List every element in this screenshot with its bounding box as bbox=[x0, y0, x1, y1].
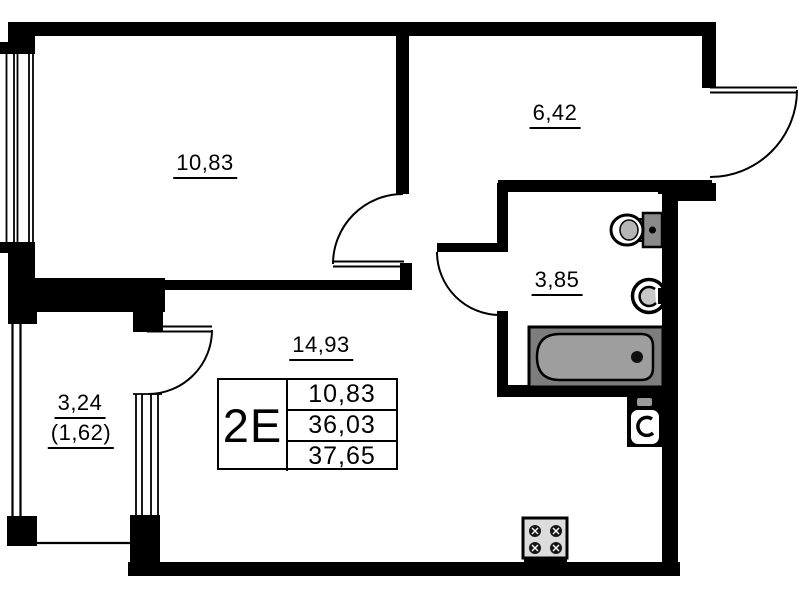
sink-unit-icon bbox=[627, 389, 663, 447]
room-area-label-living: 14,93 bbox=[289, 333, 353, 357]
door-swing-arc bbox=[333, 194, 403, 264]
area-row-living: 10,83 bbox=[288, 380, 396, 409]
wall-left-window-bottom-cap bbox=[8, 242, 35, 282]
door-balcony bbox=[147, 327, 212, 395]
door-swing-arc bbox=[710, 90, 797, 177]
room-area-label-hallway: 6,42 bbox=[530, 101, 581, 125]
door-swing-arc bbox=[437, 252, 500, 315]
unit-info-table: 2E 10,83 36,03 37,65 bbox=[217, 378, 398, 470]
room-area-label-balcony: 3,24 bbox=[55, 391, 106, 415]
wall-balcony-junction-block bbox=[130, 515, 160, 576]
washbasin-icon bbox=[633, 280, 666, 313]
door-bathroom bbox=[437, 243, 508, 315]
area-row-total-with-balcony: 37,65 bbox=[288, 440, 396, 471]
floorplan-drawing bbox=[0, 0, 799, 600]
unit-type-cell: 2E bbox=[219, 380, 288, 471]
bathtub-drain bbox=[631, 351, 643, 363]
room-area-label-balcony-coeff: (1,62) bbox=[48, 421, 114, 445]
toilet-icon bbox=[611, 213, 662, 247]
wall-bottom bbox=[128, 562, 680, 576]
wall-balcony-door-header bbox=[133, 288, 163, 332]
door-room-to-hall bbox=[333, 194, 404, 267]
window-balcony bbox=[133, 394, 162, 516]
floorplan-canvas: 10,83 6,42 3,85 14,93 3,24 (1,62) 2E 10,… bbox=[0, 0, 799, 600]
wall-balcony-top-corner bbox=[8, 278, 37, 324]
window-sill-top bbox=[0, 42, 35, 54]
wall-top bbox=[8, 22, 716, 36]
room-area-label-top-room: 10,83 bbox=[173, 151, 237, 175]
wall-bath-left-upper bbox=[497, 183, 508, 252]
wall-room-hall-divider bbox=[396, 22, 409, 194]
window-room-left bbox=[7, 53, 34, 243]
wall-entrance-jamb-top bbox=[702, 22, 716, 88]
door-entrance bbox=[710, 88, 797, 178]
stove-icon bbox=[523, 518, 567, 558]
wall-bath-left-lower bbox=[497, 311, 508, 397]
room-area-label-bathroom: 3,85 bbox=[532, 268, 583, 292]
door-leaf bbox=[437, 243, 508, 252]
walls bbox=[0, 22, 716, 576]
door-swing-arc bbox=[148, 330, 212, 394]
bathtub-icon bbox=[529, 327, 663, 387]
wall-balcony-corner bbox=[7, 516, 37, 546]
area-row-total: 36,03 bbox=[288, 409, 396, 440]
wall-room-bottom-interior bbox=[160, 280, 412, 290]
